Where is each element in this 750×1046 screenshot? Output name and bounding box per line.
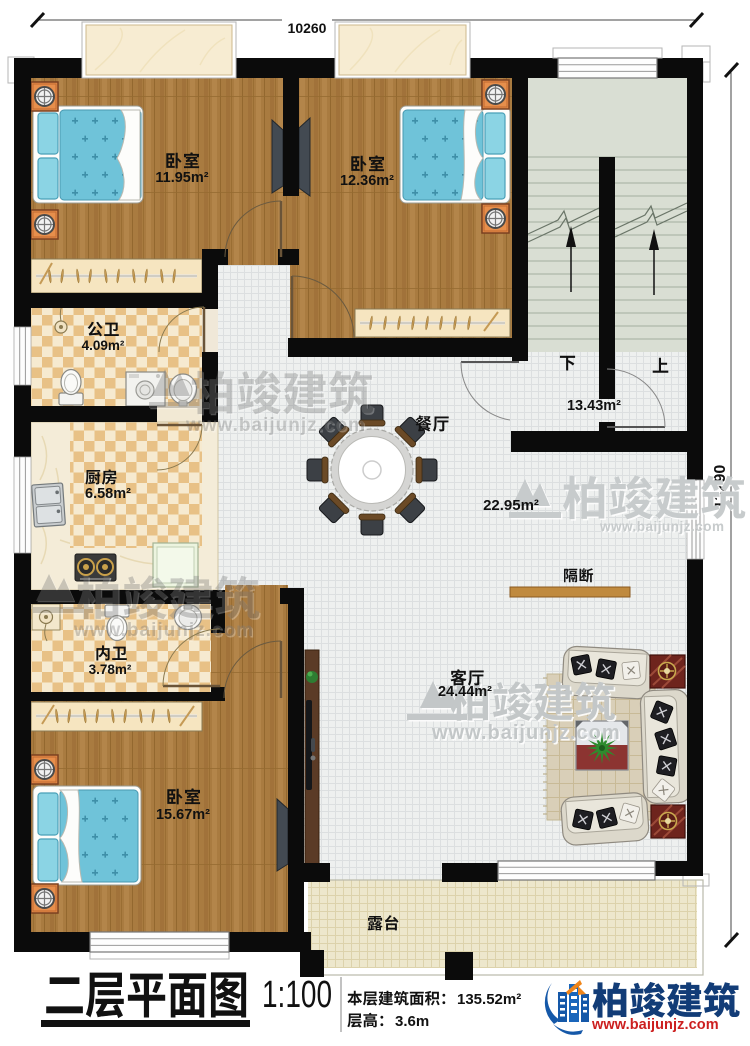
svg-text:13.43m²: 13.43m² xyxy=(567,398,621,414)
svg-text:www.baijunjz.com: www.baijunjz.com xyxy=(599,519,725,534)
svg-text:24.44m²: 24.44m² xyxy=(438,684,492,700)
svg-text:www.baijunjz.com: www.baijunjz.com xyxy=(185,415,366,436)
svg-text:3.6m: 3.6m xyxy=(395,1013,429,1030)
svg-text:11.95m²: 11.95m² xyxy=(155,170,208,186)
svg-text:10260: 10260 xyxy=(288,20,327,36)
svg-text:www.baijunjz.com: www.baijunjz.com xyxy=(591,1017,719,1033)
svg-text:3.78m²: 3.78m² xyxy=(89,662,132,677)
svg-text:www.baijunjz.com: www.baijunjz.com xyxy=(73,620,254,641)
svg-text:15.67m²: 15.67m² xyxy=(156,807,210,823)
svg-text:www.baijunjz.com: www.baijunjz.com xyxy=(431,722,621,744)
svg-text:12.36m²: 12.36m² xyxy=(340,173,394,189)
svg-text:22.95m²: 22.95m² xyxy=(483,497,539,514)
svg-text:1:100: 1:100 xyxy=(262,974,332,1016)
svg-text:135.52m²: 135.52m² xyxy=(457,991,521,1008)
svg-text:6.58m²: 6.58m² xyxy=(85,486,131,502)
svg-text:4.09m²: 4.09m² xyxy=(82,338,125,353)
